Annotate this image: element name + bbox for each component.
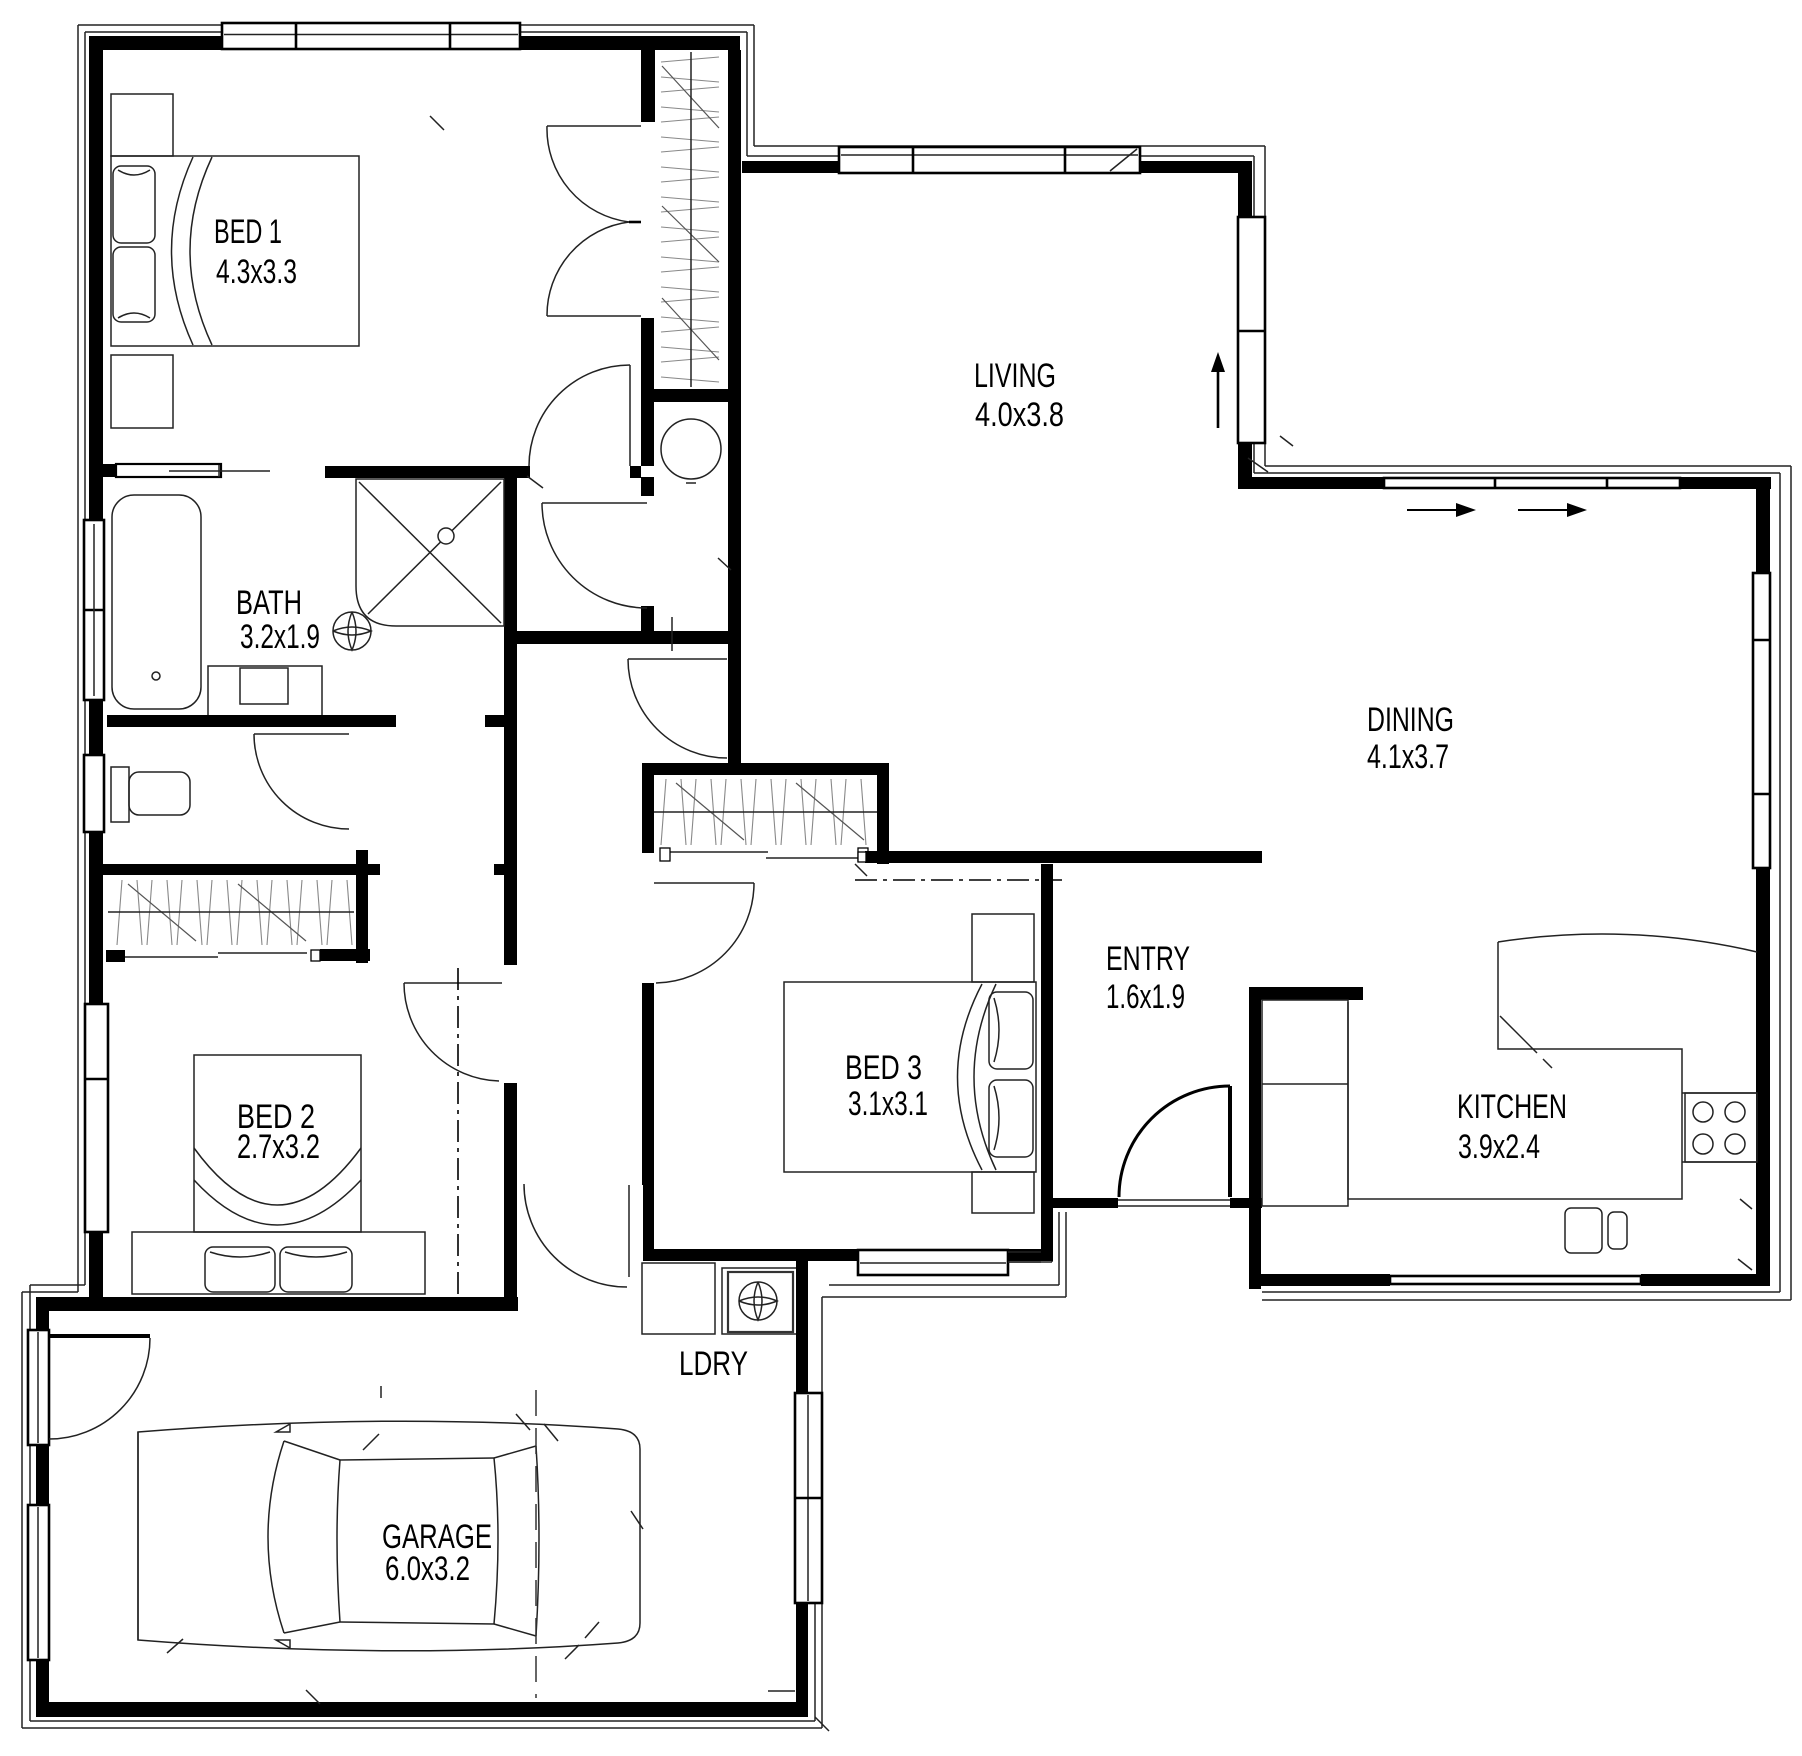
svg-text:LDRY: LDRY xyxy=(679,1345,748,1383)
svg-text:3.9x2.4: 3.9x2.4 xyxy=(1458,1128,1540,1166)
svg-text:BED 3: BED 3 xyxy=(845,1049,922,1087)
svg-text:BATH: BATH xyxy=(236,584,302,622)
svg-text:KITCHEN: KITCHEN xyxy=(1457,1088,1567,1126)
svg-text:4.3x3.3: 4.3x3.3 xyxy=(216,253,297,291)
svg-text:4.0x3.8: 4.0x3.8 xyxy=(975,396,1064,434)
svg-text:DINING: DINING xyxy=(1367,701,1454,739)
svg-text:1.6x1.9: 1.6x1.9 xyxy=(1106,978,1185,1016)
svg-text:ENTRY: ENTRY xyxy=(1106,940,1190,978)
svg-text:3.2x1.9: 3.2x1.9 xyxy=(240,618,320,656)
svg-text:2.7x3.2: 2.7x3.2 xyxy=(237,1128,320,1166)
svg-text:3.1x3.1: 3.1x3.1 xyxy=(848,1085,928,1123)
svg-text:4.1x3.7: 4.1x3.7 xyxy=(1367,738,1449,776)
svg-text:6.0x3.2: 6.0x3.2 xyxy=(385,1550,470,1588)
svg-text:BED 1: BED 1 xyxy=(214,213,282,251)
svg-text:LIVING: LIVING xyxy=(974,357,1056,395)
